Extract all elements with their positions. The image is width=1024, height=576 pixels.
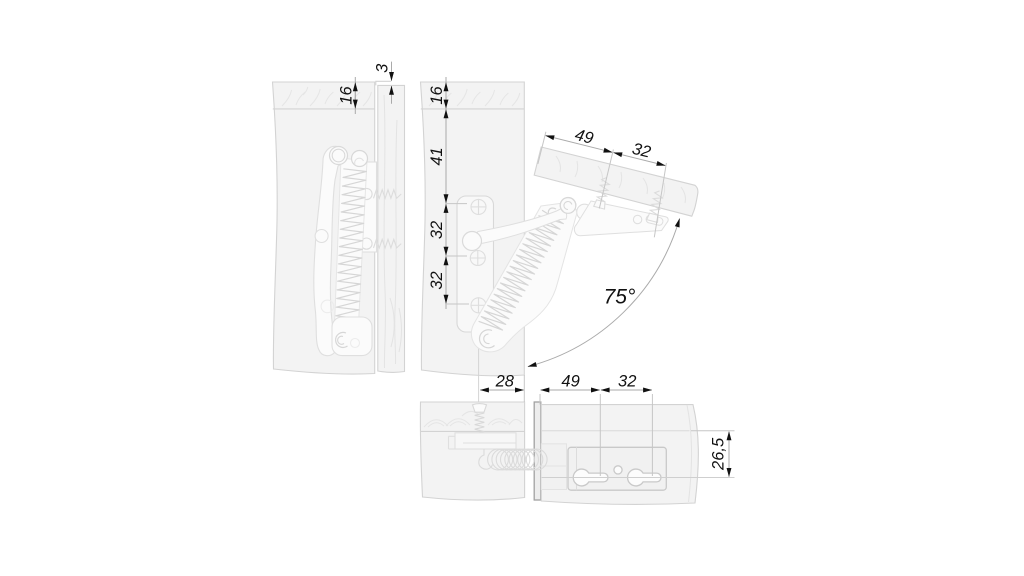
svg-text:41: 41 <box>428 147 446 165</box>
svg-text:75°: 75° <box>604 286 636 309</box>
svg-text:32: 32 <box>428 271 446 289</box>
svg-text:28: 28 <box>495 373 515 391</box>
svg-text:32: 32 <box>428 221 446 239</box>
svg-text:16: 16 <box>428 86 446 105</box>
svg-text:49: 49 <box>561 373 579 391</box>
svg-text:26,5: 26,5 <box>709 437 727 471</box>
svg-text:16: 16 <box>338 86 356 105</box>
svg-text:32: 32 <box>618 373 636 391</box>
svg-text:3: 3 <box>374 63 392 73</box>
